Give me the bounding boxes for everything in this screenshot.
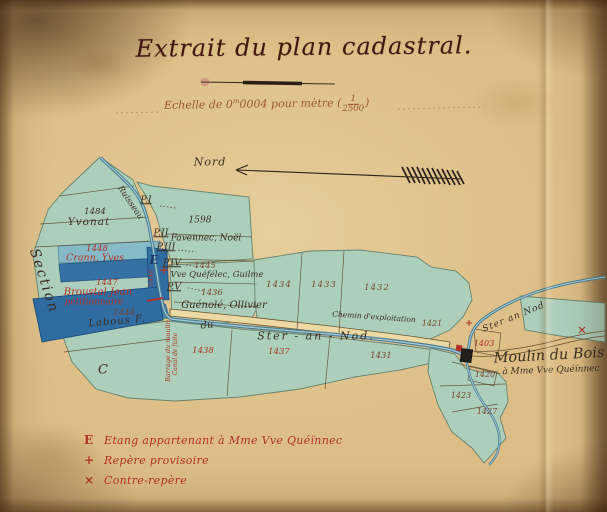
legend-label: Etang appartenant à Mme Vve Quéïnnec [104,434,342,447]
pond-letter-symbol: E [84,433,104,447]
scale-prefix: Echelle de 0 [164,98,233,112]
legend-item: +Repère provisoire [84,453,342,467]
north-arrow [236,165,464,185]
scale-rest: 0004 pour mètre [239,96,333,110]
legend-item: EEtang appartenant à Mme Vve Quéïnnec [84,433,342,447]
cadastral-plan-photo: Extrait du plan cadastral. Echelle de 0m… [0,0,607,512]
legend: EEtang appartenant à Mme Vve Quéïnnec+Re… [84,433,342,493]
page-title: Extrait du plan cadastral. [135,31,472,63]
scale-paren-open: ( [337,96,341,109]
scale-paren-close: ) [365,96,369,109]
provisional-benchmark-symbol: + [84,453,104,467]
scale-caption: Echelle de 0m0004 pour mètre (12500) [164,94,370,116]
scale-fraction-denominator: 2500 [342,105,364,114]
legend-item: ×Contre-repère [84,473,342,487]
title-flourish [201,78,336,87]
legend-label: Contre-repère [104,474,187,487]
counter-benchmark-symbol: × [84,473,104,487]
plus-mark-east [466,320,472,326]
legend-label: Repère provisoire [104,454,209,467]
scale-fraction: 12500 [342,95,364,114]
